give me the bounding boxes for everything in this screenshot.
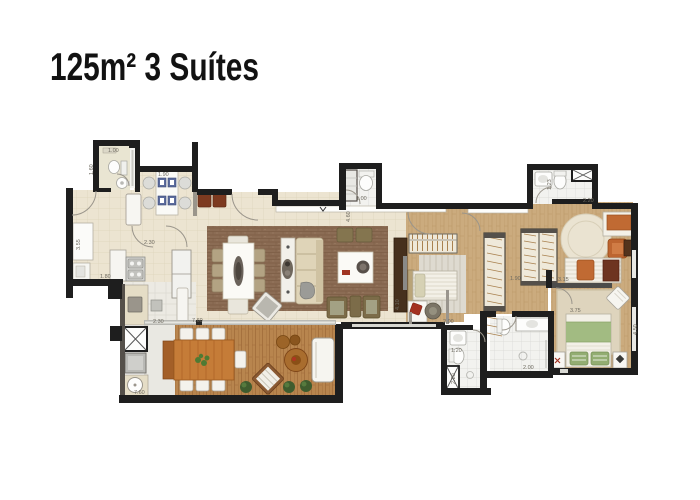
svg-text:2.00: 2.00 bbox=[523, 365, 534, 371]
svg-text:1.90: 1.90 bbox=[510, 276, 521, 282]
svg-text:2.00: 2.00 bbox=[443, 319, 454, 325]
svg-text:1.23: 1.23 bbox=[547, 179, 553, 190]
svg-text:3.75: 3.75 bbox=[570, 308, 581, 314]
svg-text:1.00: 1.00 bbox=[108, 148, 119, 154]
svg-text:3.15: 3.15 bbox=[558, 277, 569, 283]
svg-text:3.55: 3.55 bbox=[76, 239, 82, 250]
svg-text:2.20: 2.20 bbox=[583, 198, 594, 204]
svg-text:2.20: 2.20 bbox=[451, 373, 457, 384]
svg-text:1.00: 1.00 bbox=[356, 196, 367, 202]
svg-text:7.60: 7.60 bbox=[134, 390, 145, 396]
svg-text:4.10: 4.10 bbox=[395, 299, 401, 310]
svg-text:1.90: 1.90 bbox=[158, 172, 169, 178]
svg-text:4.60: 4.60 bbox=[346, 211, 352, 222]
svg-text:1.20: 1.20 bbox=[451, 348, 462, 354]
svg-text:2.30: 2.30 bbox=[144, 240, 155, 246]
svg-text:1.60: 1.60 bbox=[89, 164, 95, 175]
svg-text:1.80: 1.80 bbox=[100, 274, 111, 280]
svg-text:7.60: 7.60 bbox=[192, 318, 203, 324]
svg-text:2.30: 2.30 bbox=[153, 319, 164, 325]
svg-text:4.50: 4.50 bbox=[633, 324, 639, 335]
